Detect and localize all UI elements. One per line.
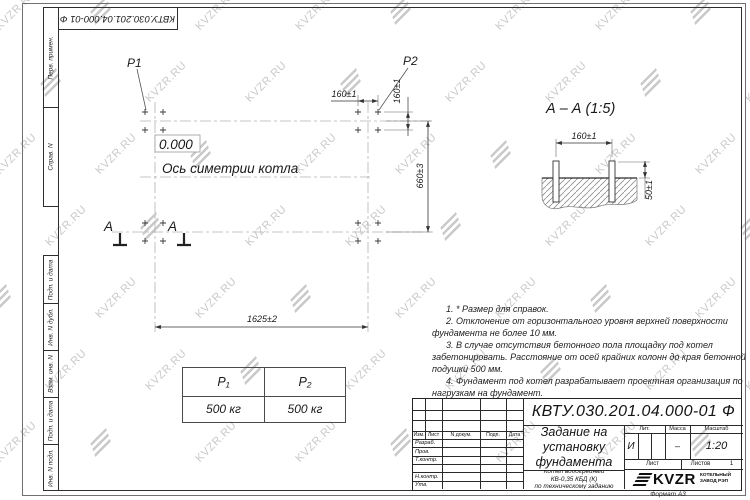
mass-value: – <box>665 433 690 459</box>
loads-table-header-p2: P₂ <box>264 368 345 396</box>
tb-col-data: Дата <box>506 431 523 439</box>
sheets-value: 1 <box>730 461 733 467</box>
note-4: 4. Фундамент под котел разрабатывает про… <box>432 376 750 400</box>
lit-label: Лит. <box>624 425 665 433</box>
note-1: 1. * Размер для справок. <box>432 304 750 316</box>
doc-subtitle: Котел водогрейный КВ-0,35 КБД (К) по тех… <box>524 470 624 489</box>
loads-table-value-p1: 500 кг <box>183 396 264 422</box>
tb-row-razrab: Разраб. <box>413 439 442 447</box>
note-2: 2. Отклонение от горизонтального уровня … <box>432 316 750 340</box>
title-block: Изм. Лист N докум. Подп. Дата Разраб. Пр… <box>412 398 742 491</box>
margin-cell: Перв. примен. <box>44 8 58 108</box>
kvzr-spring-icon <box>633 473 653 486</box>
rotated-doc-number-box: КВТУ.030.201.04.000-01 Ф <box>58 7 178 30</box>
company-name: KVZR <box>653 471 696 488</box>
loads-table-header-p1: P₁ <box>183 368 264 396</box>
format-label: Формат А3 <box>608 490 728 499</box>
tb-row-empty <box>413 464 442 472</box>
rotated-doc-number: КВТУ.030.201.04.000-01 Ф <box>60 13 175 24</box>
sheets-label: Листов <box>691 461 711 467</box>
margin-cell: Инв. N подл. <box>44 445 58 490</box>
loads-table-value-p2: 500 кг <box>264 396 345 422</box>
company-logo-cell: KVZR КОТЕЛЬНЫЙ ЗАВОД РЭП <box>624 469 743 489</box>
notes-block: 1. * Размер для справок. 2. Отклонение о… <box>432 304 750 400</box>
tb-row-prov: Пров. <box>413 447 442 456</box>
margin-stamp-bottom: Подп. и дата Инв. N дубл. Взам. инв. N П… <box>43 255 59 491</box>
margin-cell: Взам. инв. N <box>44 351 58 398</box>
margin-cell: Справ. N <box>44 108 58 206</box>
tb-col-ndokum: N докум. <box>442 431 480 439</box>
scale-value: 1:20 <box>690 433 743 459</box>
margin-stamp-top: Перв. примен. Справ. N <box>43 7 59 207</box>
doc-title: Задание на установку фундамента <box>524 425 624 470</box>
tb-row-utv: Утв. <box>413 481 442 489</box>
scale-label: Масштаб <box>690 425 743 433</box>
tb-row-tkontr: Т.контр. <box>413 456 442 464</box>
tb-col-izm: Изм. <box>413 431 425 439</box>
loads-table: P₁ P₂ 500 кг 500 кг <box>182 367 346 423</box>
watermark-logo-glyph <box>0 284 12 315</box>
doc-number: КВТУ.030.201.04.000-01 Ф <box>524 399 743 425</box>
company-desc: КОТЕЛЬНЫЙ ЗАВОД РЭП <box>700 473 731 485</box>
sheets-cell: Листов 1 <box>681 459 743 469</box>
tb-col-podp: Подп. <box>480 431 506 439</box>
lit-value: И <box>624 433 638 459</box>
sheet-label: Лист <box>624 459 681 469</box>
mass-label: Масса <box>665 425 690 433</box>
margin-cell: Подп. и дата <box>44 256 58 304</box>
tb-row-nkontr: Н.контр. <box>413 472 442 481</box>
note-3: 3. В случае отсутствия бетонного пола пл… <box>432 340 750 376</box>
margin-cell: Инв. N дубл. <box>44 304 58 351</box>
margin-cell: Подп. и дата <box>44 398 58 445</box>
tb-col-list: Лист <box>425 431 442 439</box>
